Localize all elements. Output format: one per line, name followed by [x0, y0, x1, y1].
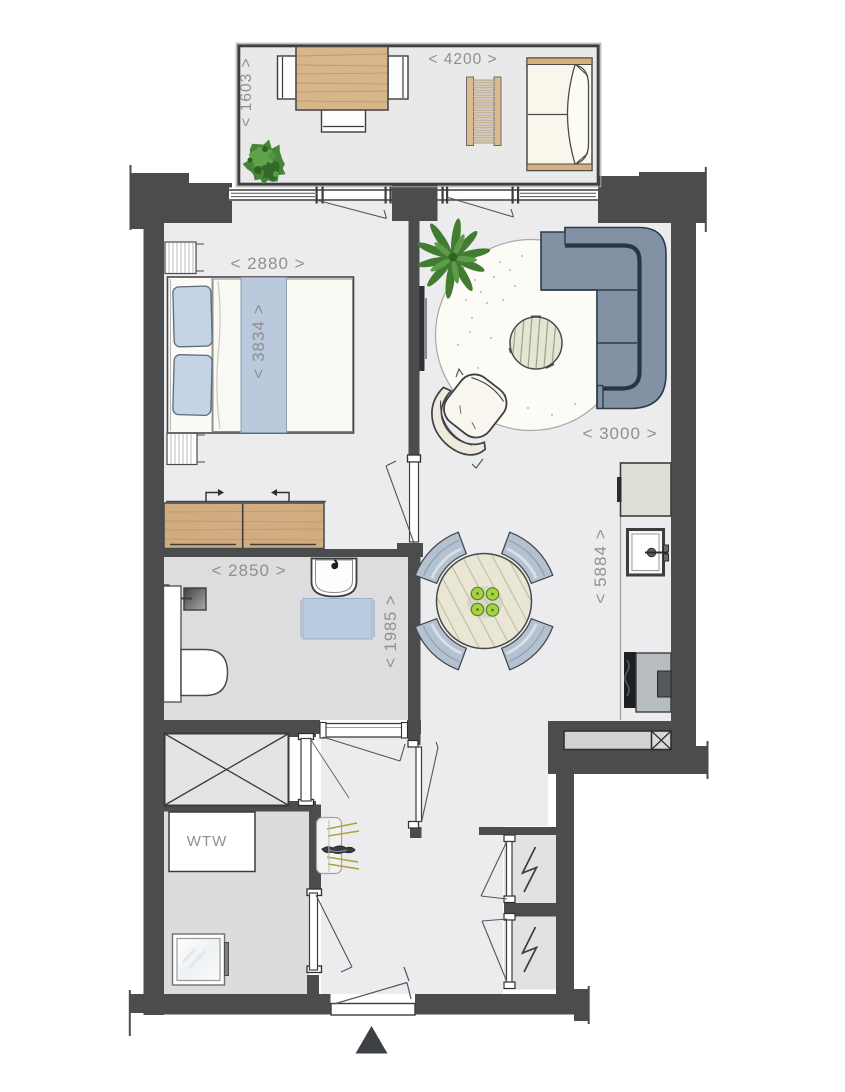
- svg-text:< 2880 >: < 2880 >: [230, 254, 305, 273]
- svg-text:WTW: WTW: [187, 833, 227, 850]
- svg-text:< 1985 >: < 1985 >: [382, 594, 400, 667]
- svg-text:< 3000 >: < 3000 >: [582, 424, 657, 443]
- svg-text:< 4200 >: < 4200 >: [428, 51, 497, 68]
- svg-text:< 2850 >: < 2850 >: [211, 561, 286, 580]
- svg-text:< 3834 >: < 3834 >: [249, 303, 268, 378]
- svg-text:< 1603 >: < 1603 >: [238, 57, 255, 126]
- svg-text:< 5884 >: < 5884 >: [591, 528, 610, 603]
